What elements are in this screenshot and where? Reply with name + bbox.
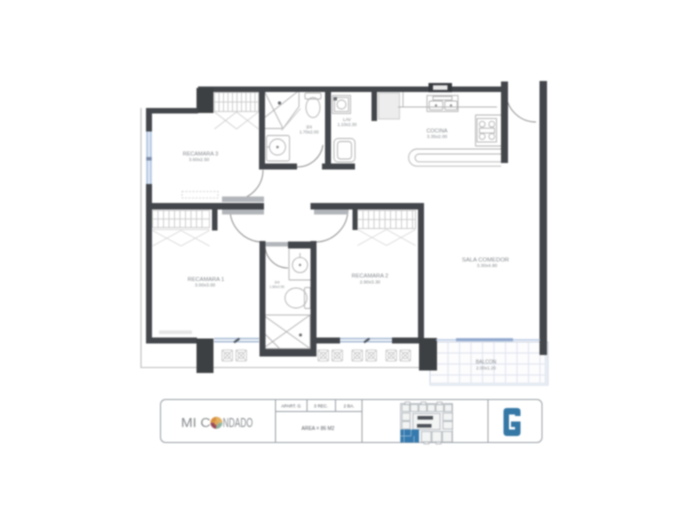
svg-text:3.00x3.00: 3.00x3.00 [195, 283, 216, 288]
svg-text:3.35x2.00: 3.35x2.00 [427, 134, 448, 139]
svg-text:2.00x1.20: 2.00x1.20 [476, 366, 496, 371]
svg-text:AREA = 86 M2: AREA = 86 M2 [302, 426, 335, 432]
svg-text:APART. G: APART. G [281, 404, 301, 409]
svg-text:2.90x3.30: 2.90x3.30 [360, 280, 381, 285]
svg-text:2 BA.: 2 BA. [344, 404, 355, 409]
svg-text:1.10x2.30: 1.10x2.30 [337, 122, 357, 127]
svg-text:1.80x2.90: 1.80x2.90 [270, 285, 285, 289]
svg-text:1.70x2.00: 1.70x2.00 [299, 130, 319, 135]
svg-text:3/4: 3/4 [274, 281, 279, 285]
svg-text:3 REC.: 3 REC. [314, 404, 328, 409]
svg-text:3.30x4.80: 3.30x4.80 [477, 263, 498, 268]
svg-text:3.60x2.50: 3.60x2.50 [189, 157, 210, 162]
svg-text:MI C: MI C [181, 415, 211, 430]
svg-text:NDADO: NDADO [223, 415, 253, 430]
